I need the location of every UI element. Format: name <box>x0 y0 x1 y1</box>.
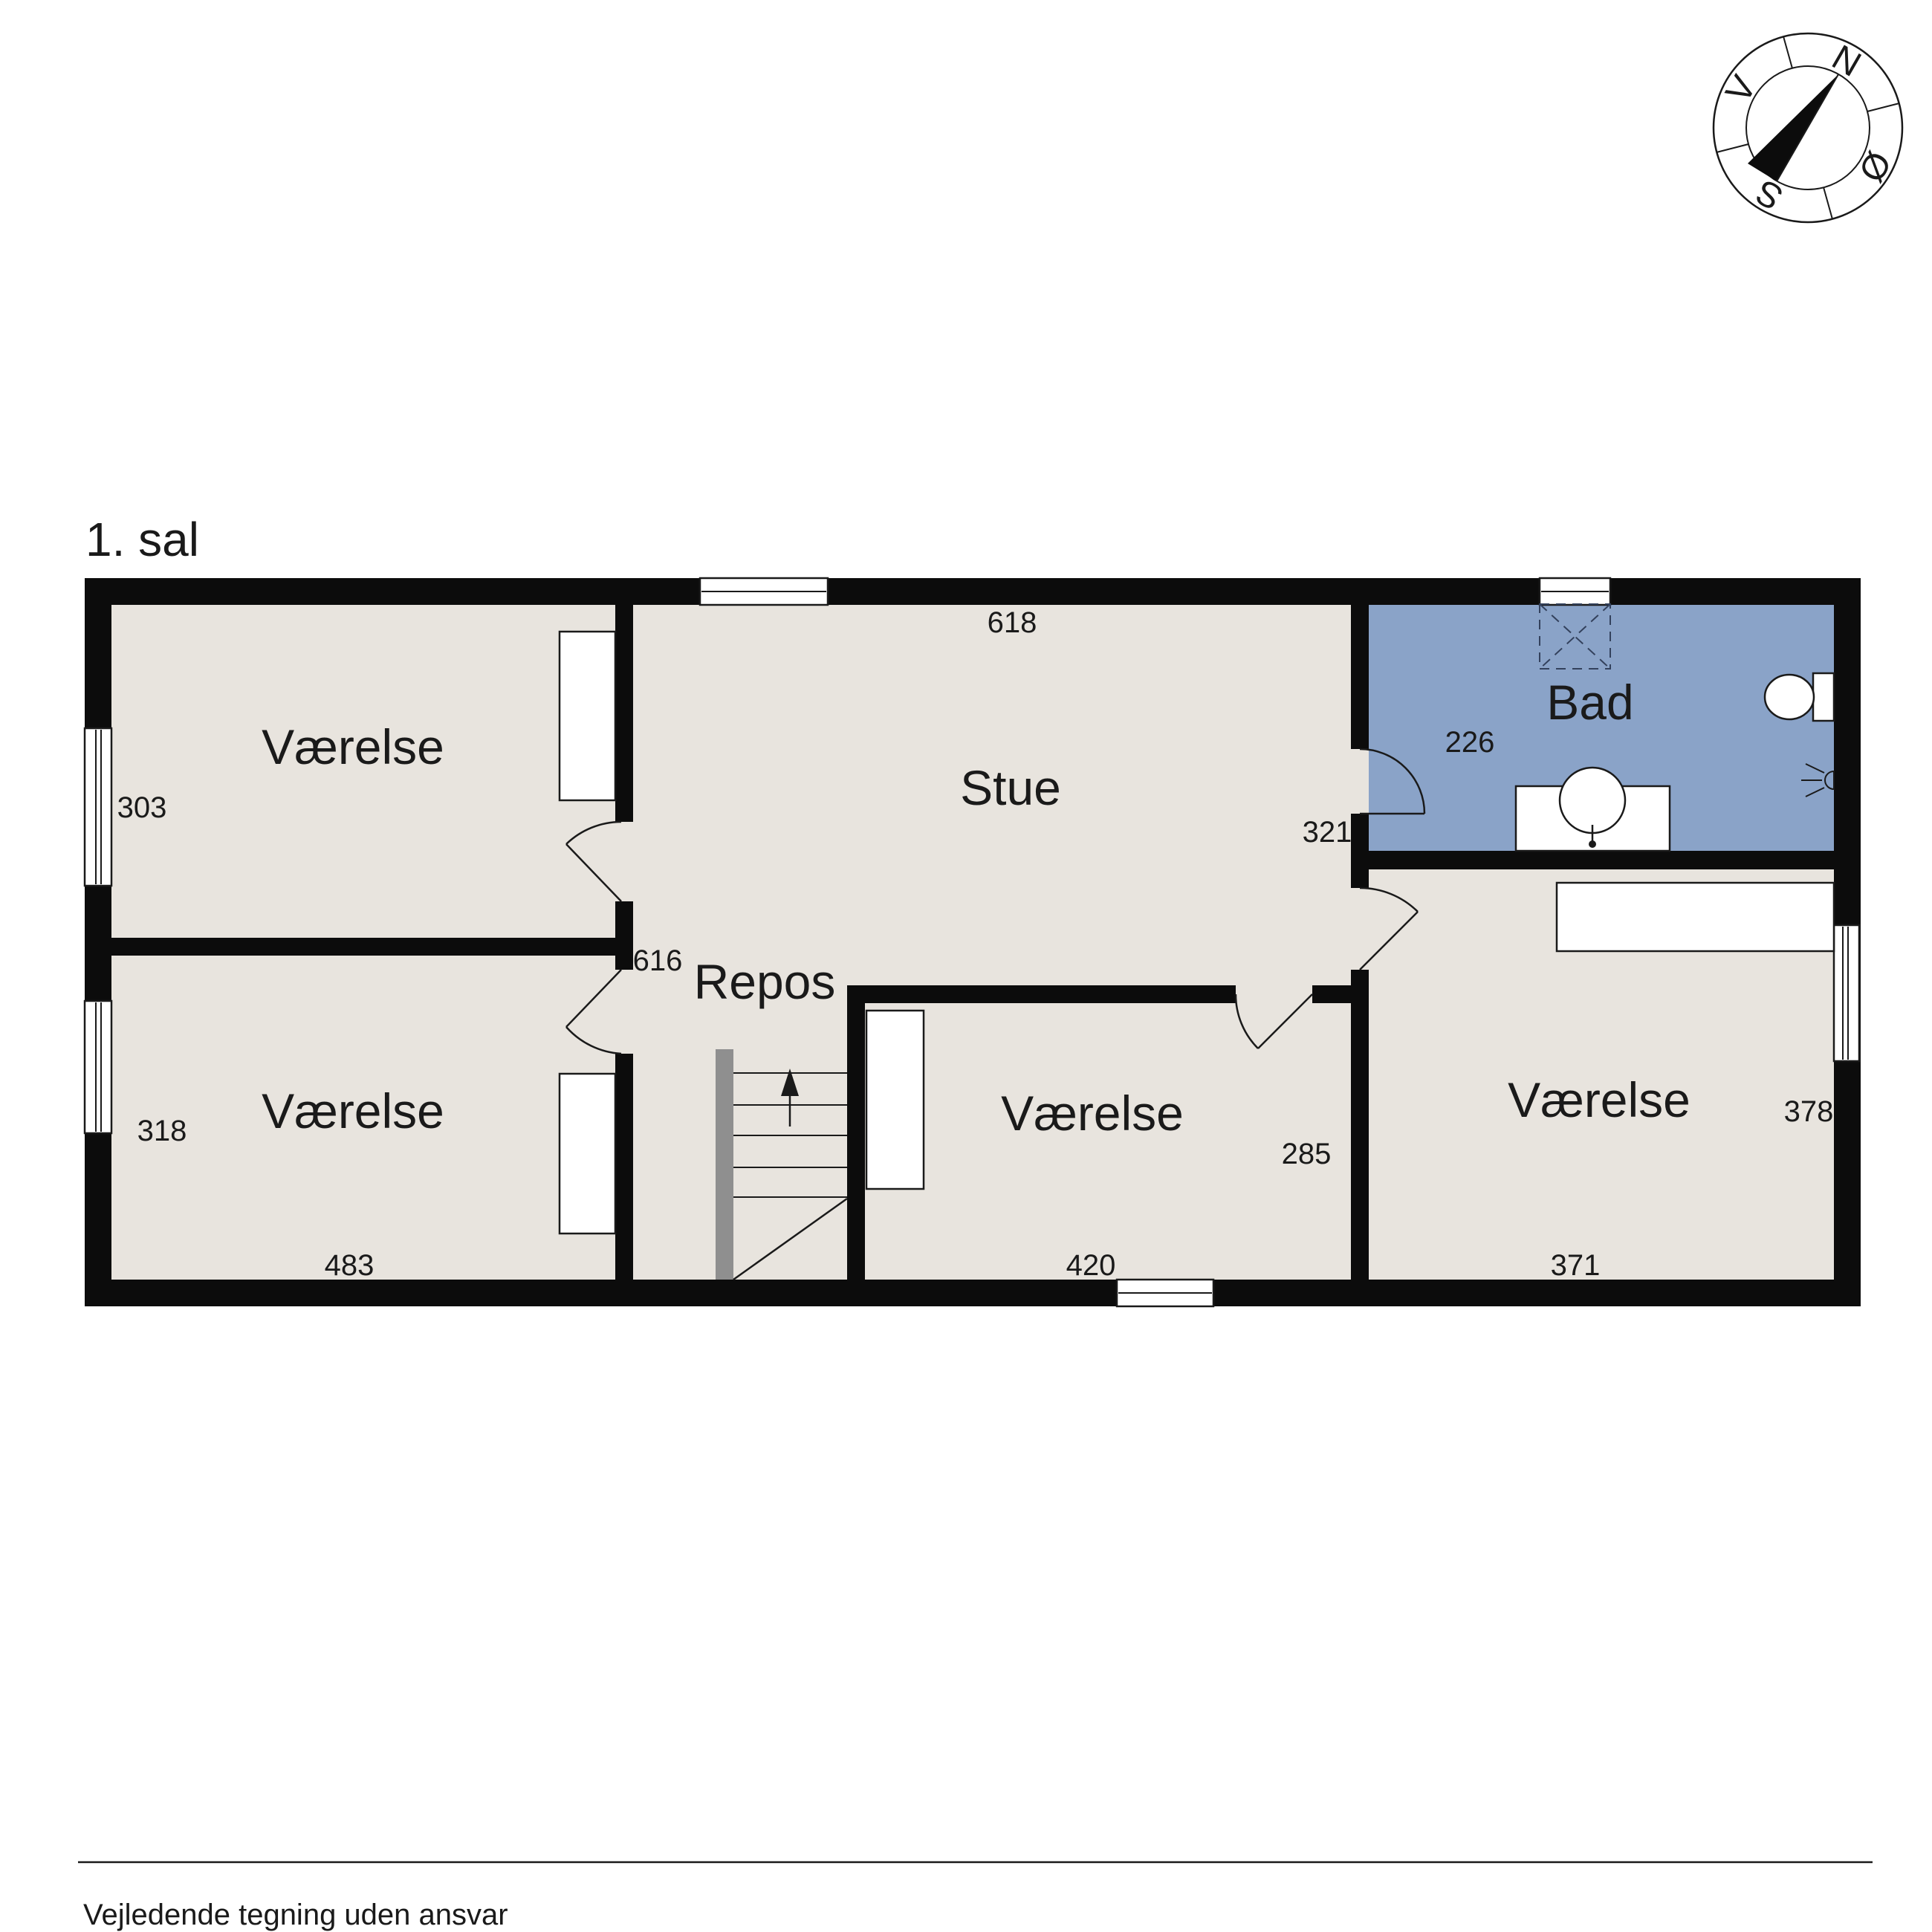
room-label-bath: Bad <box>1546 675 1633 730</box>
wall-segment <box>1351 605 1369 749</box>
window-top-living <box>700 578 828 605</box>
wall-segment <box>1351 814 1369 888</box>
room-label-living: Stue <box>960 760 1061 815</box>
wall-segment <box>111 938 615 956</box>
wall-outer-bottom <box>85 1280 1861 1306</box>
wall-segment <box>1369 851 1834 869</box>
wardrobe-bedroom-s <box>866 1011 924 1189</box>
dim-bedroom-se-width: 371 <box>1551 1249 1601 1282</box>
toilet-icon <box>1765 673 1834 721</box>
wardrobe-bedroom-sw <box>560 1074 615 1234</box>
room-label-bedroom-se: Værelse <box>1508 1072 1690 1127</box>
dim-living-width: 618 <box>988 606 1037 639</box>
room-label-bedroom-sw: Værelse <box>262 1083 444 1138</box>
dim-bedroom-sw-height: 318 <box>137 1115 187 1147</box>
dim-bedroom-nw-height: 303 <box>117 791 167 824</box>
dim-landing-width: 616 <box>633 944 683 977</box>
wall-segment <box>615 1054 633 1280</box>
stair-rail <box>716 1049 733 1280</box>
dim-bedroom-s-width: 420 <box>1066 1249 1116 1282</box>
wall-segment <box>847 985 1236 1003</box>
room-label-bedroom-s: Værelse <box>1001 1086 1184 1141</box>
wall-segment <box>1351 970 1369 1280</box>
window-left-north <box>85 728 111 886</box>
wardrobe-bedroom-nw <box>560 632 615 800</box>
footer-disclaimer: Vejledende tegning uden ansvar <box>83 1899 508 1931</box>
wardrobe-bedroom-se <box>1557 883 1834 951</box>
wall-segment <box>847 1003 865 1280</box>
wall-segment <box>615 605 633 822</box>
floorplan-canvas: 1. sal <box>0 0 1932 1932</box>
floor-title: 1. sal <box>85 513 199 566</box>
wall-outer-left <box>85 578 111 1306</box>
window-left-south <box>85 1001 111 1133</box>
dim-bedroom-se-height: 378 <box>1784 1095 1834 1128</box>
dim-living-right: 321 <box>1303 816 1352 849</box>
window-right <box>1834 925 1859 1061</box>
room-label-bedroom-nw: Værelse <box>262 719 444 774</box>
floorplan: Værelse Værelse Stue Repos Bad Værelse V… <box>85 578 1861 1306</box>
dim-bedroom-s-height: 285 <box>1282 1138 1332 1170</box>
wall-segment <box>615 901 633 970</box>
room-label-landing: Repos <box>694 954 836 1009</box>
window-top-bath <box>1540 578 1610 605</box>
dim-bedroom-sw-width: 483 <box>325 1249 375 1282</box>
dim-bath-height: 226 <box>1445 726 1495 759</box>
window-bottom <box>1117 1280 1213 1306</box>
